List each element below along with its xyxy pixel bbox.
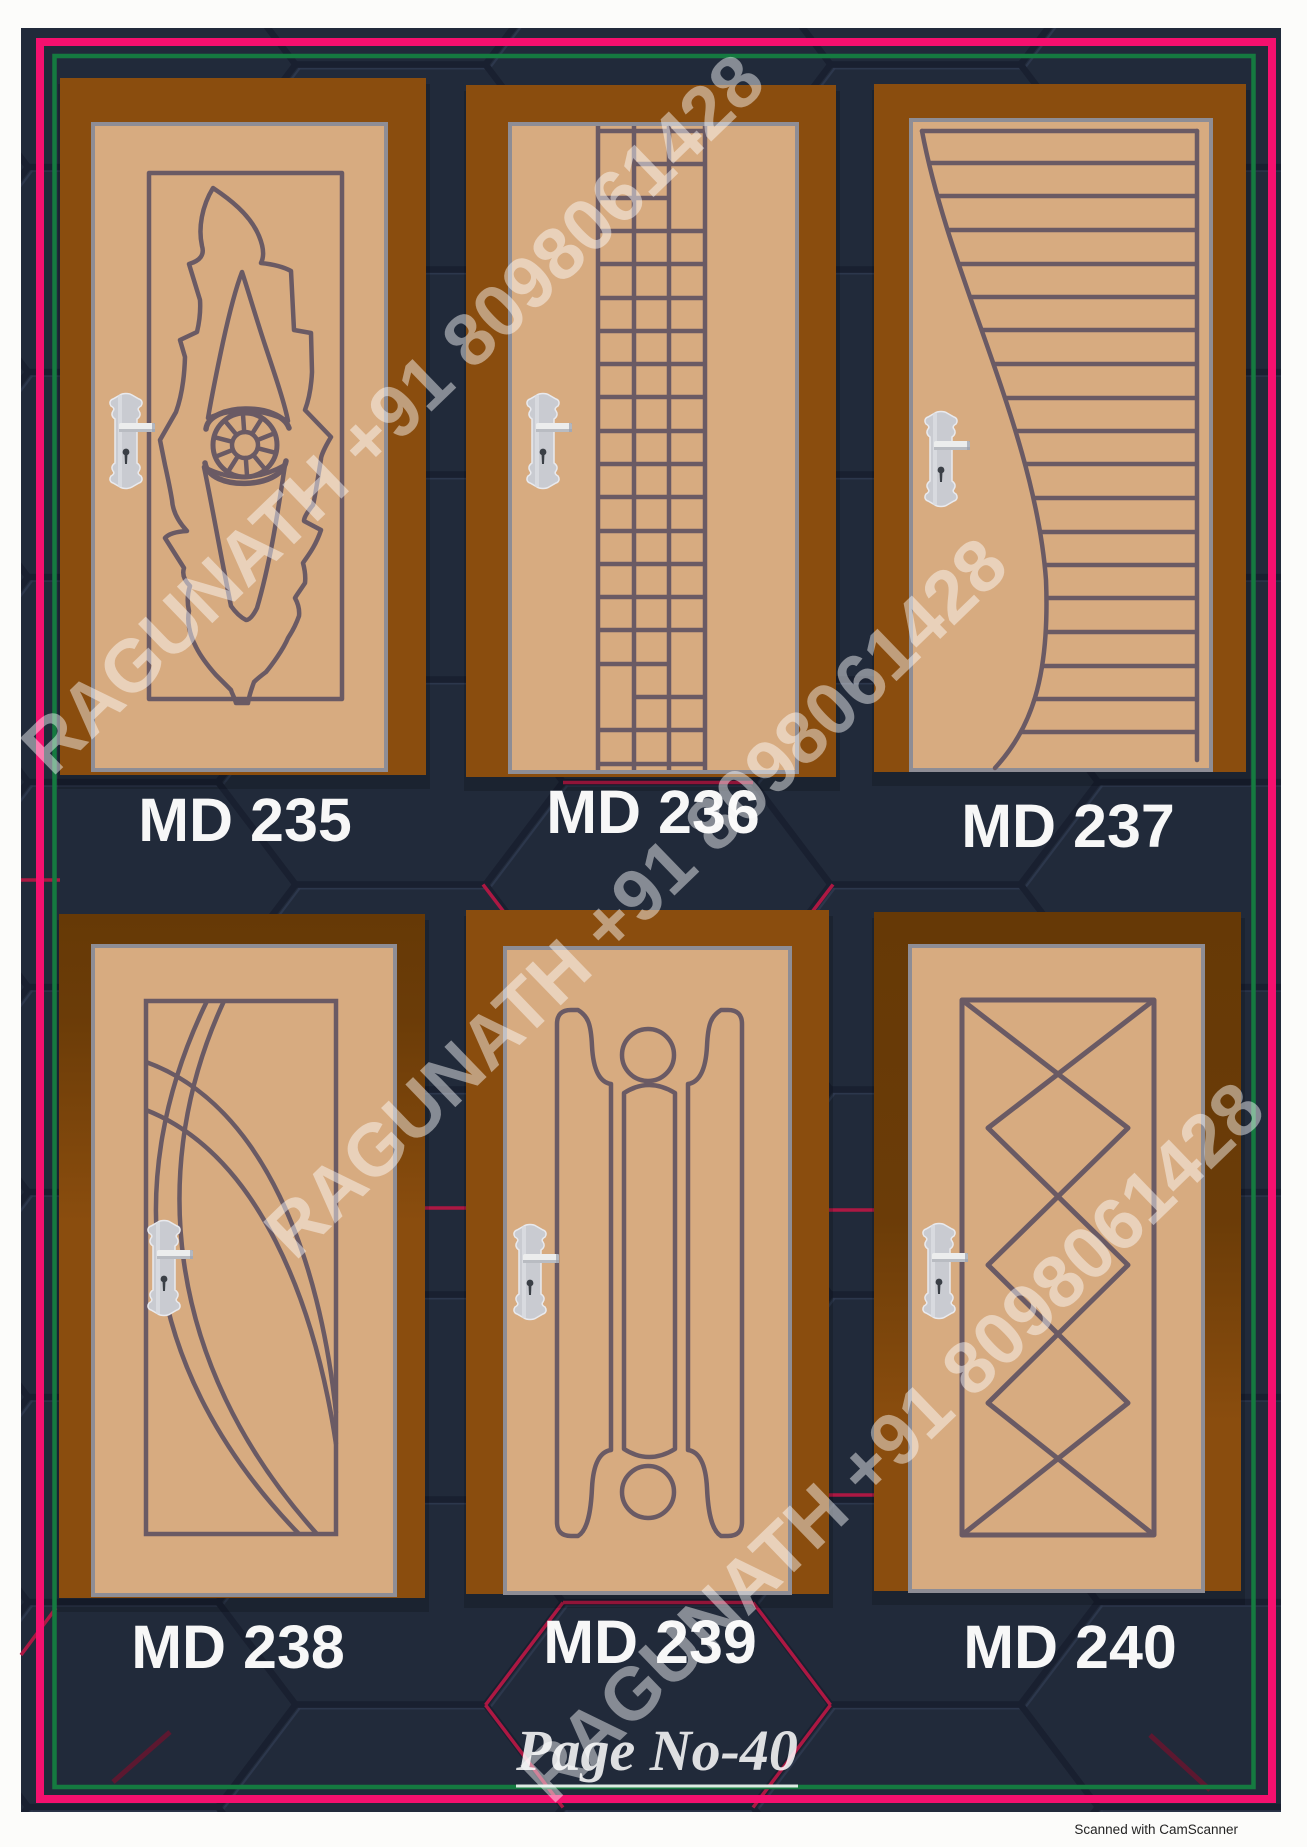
svg-text:MD 235: MD 235: [138, 786, 352, 854]
svg-text:Scanned with CamScanner: Scanned with CamScanner: [1074, 1822, 1238, 1837]
svg-text:Page No-40: Page No-40: [515, 1718, 798, 1783]
svg-text:MD 240: MD 240: [963, 1613, 1177, 1681]
svg-text:MD 237: MD 237: [961, 792, 1175, 860]
svg-text:MD 238: MD 238: [131, 1613, 345, 1681]
